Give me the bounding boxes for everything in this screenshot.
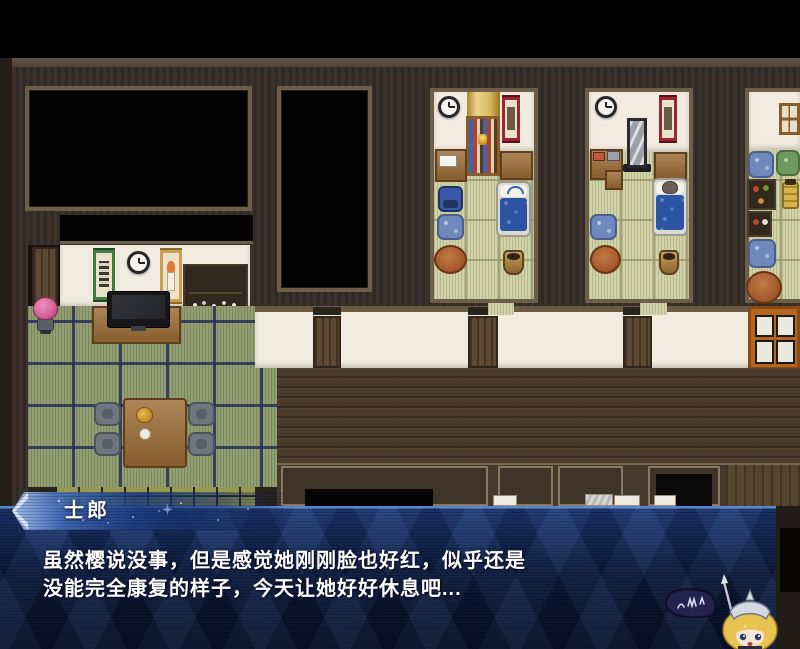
speaker-name: 士郎 <box>64 492 110 530</box>
floor-cushion <box>748 239 776 268</box>
bookshelf <box>466 116 500 176</box>
lower-wall-right <box>726 465 800 506</box>
wall-clock <box>127 251 150 274</box>
hanging-scroll <box>502 97 520 141</box>
picture-frame <box>607 151 620 161</box>
clay-pot <box>503 250 524 275</box>
floor-cushion <box>437 214 464 240</box>
dark-room-center <box>277 86 372 292</box>
paper-lamp <box>782 182 799 209</box>
dark-room-left <box>25 86 252 211</box>
hall-door <box>623 316 652 368</box>
teacup <box>139 428 151 440</box>
eye-right <box>755 634 761 640</box>
wall-clock <box>595 96 617 118</box>
round-table <box>434 245 467 274</box>
window-sill <box>585 494 613 506</box>
floor-cushion <box>94 402 121 426</box>
window-sill <box>493 495 517 506</box>
television <box>107 291 170 328</box>
pole-tip <box>721 574 728 584</box>
speaker-name-banner: 士郎 <box>12 492 284 530</box>
door-transom <box>313 307 341 315</box>
wall-top-edge <box>0 58 800 67</box>
window-sill <box>654 495 676 506</box>
side-table <box>605 170 623 190</box>
floor-cushion <box>188 432 215 456</box>
low-table <box>123 398 187 468</box>
round-table <box>746 271 782 304</box>
headpiece-spike <box>746 590 754 600</box>
hallway-floor <box>277 368 800 463</box>
bed <box>496 181 531 237</box>
book-rack <box>747 211 772 237</box>
hall-door <box>468 316 498 368</box>
standing-mirror <box>627 118 647 168</box>
game-viewport: 士郎 虽然樱说没事，但是感觉她刚刚脸也好红，似乎还是 没能完全康复的样子，今天让… <box>0 0 800 649</box>
room-exit <box>640 303 667 315</box>
shoji-window <box>748 306 800 370</box>
dresser <box>500 151 533 180</box>
dark-wall-strip <box>60 215 253 244</box>
storage-shelf <box>747 179 776 210</box>
floor-cushion <box>590 214 617 240</box>
dresser <box>654 152 687 180</box>
teapot <box>136 407 153 423</box>
round-table <box>590 245 621 274</box>
picture-frame <box>593 152 605 161</box>
mouth <box>747 642 752 646</box>
hanging-scroll <box>659 97 677 141</box>
framed-window <box>779 103 800 135</box>
dialogue-line-2: 没能完全康复的样子，今天让她好好休息吧... <box>43 572 462 601</box>
desk-chair <box>438 186 463 212</box>
left-door <box>32 247 58 304</box>
eye-left <box>740 634 746 640</box>
laptop <box>439 155 457 167</box>
trophy <box>478 134 487 145</box>
wall-clock <box>438 96 460 118</box>
room-exit <box>488 303 514 315</box>
hall-door <box>313 316 341 368</box>
clay-pot <box>659 250 679 275</box>
top-black-band <box>0 0 800 58</box>
window-sill <box>614 495 640 506</box>
doorway-opening <box>305 489 433 506</box>
pink-haired-character <box>33 297 58 335</box>
floor-cushion <box>748 151 774 178</box>
floor-cushion <box>188 402 215 426</box>
cabinet-shelf <box>189 292 242 294</box>
jeanne-chibi-mascot <box>648 572 800 649</box>
sleeping-character <box>662 181 678 194</box>
floor-cushion <box>776 150 800 176</box>
floor-cushion <box>94 432 121 456</box>
dialogue-line-1: 虽然樱说没事，但是感觉她刚刚脸也好红，似乎还是 <box>43 544 526 573</box>
